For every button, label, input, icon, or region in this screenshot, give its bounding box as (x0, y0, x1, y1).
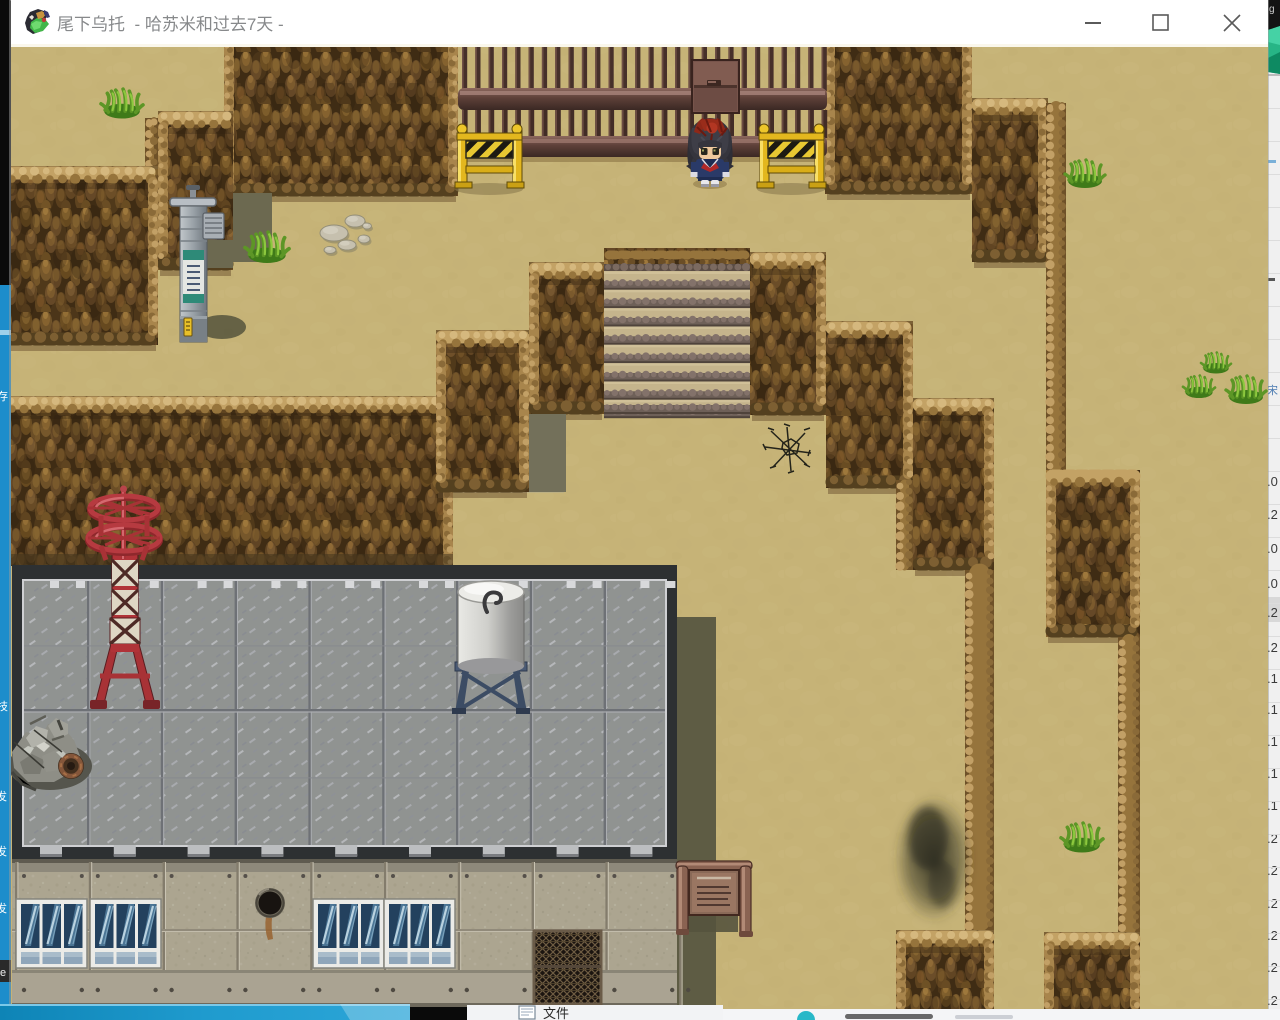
svg-text:.0: .0 (1267, 576, 1278, 591)
svg-text:技: 技 (0, 700, 8, 713)
svg-text:.2: .2 (1267, 831, 1278, 846)
svg-text:.1: .1 (1267, 734, 1278, 749)
svg-text:.2: .2 (1267, 896, 1278, 911)
svg-text:g: g (1269, 4, 1275, 15)
svg-text:.2: .2 (1267, 960, 1278, 975)
svg-text:.0: .0 (1267, 474, 1278, 489)
svg-text:.1: .1 (1267, 671, 1278, 686)
svg-text:.2: .2 (1267, 993, 1278, 1008)
svg-text:.2: .2 (1267, 605, 1278, 620)
svg-text:发: 发 (0, 844, 7, 858)
svg-text:.1: .1 (1267, 702, 1278, 717)
svg-text:e: e (0, 967, 6, 979)
svg-text:尾下乌托 - 哈苏米和过去7天 -: 尾下乌托 - 哈苏米和过去7天 - (57, 15, 284, 34)
svg-text:.1: .1 (1267, 798, 1278, 813)
svg-text:发: 发 (0, 789, 7, 803)
svg-text:.2: .2 (1267, 928, 1278, 943)
svg-text:发: 发 (0, 901, 7, 915)
svg-text:.0: .0 (1267, 541, 1278, 556)
svg-text:宋: 宋 (1267, 383, 1278, 397)
svg-text:.2: .2 (1267, 863, 1278, 878)
svg-text:存: 存 (0, 389, 8, 403)
svg-text:.2: .2 (1267, 507, 1278, 522)
svg-text:.2: .2 (1267, 640, 1278, 655)
svg-text:文件: 文件 (543, 1006, 569, 1020)
